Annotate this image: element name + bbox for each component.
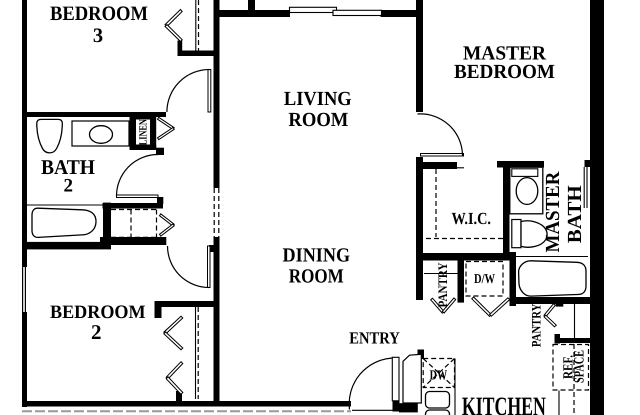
svg-text:KITCHEN: KITCHEN: [462, 391, 546, 415]
svg-text:D/W: D/W: [474, 271, 495, 286]
svg-text:ENTRY: ENTRY: [349, 328, 400, 347]
svg-text:2: 2: [64, 176, 74, 197]
svg-text:ROOM: ROOM: [289, 266, 344, 288]
svg-text:LINEN: LINEN: [138, 119, 150, 145]
svg-text:BEDROOM: BEDROOM: [50, 3, 148, 25]
svg-text:3: 3: [93, 25, 103, 47]
svg-text:ROOM: ROOM: [288, 109, 348, 131]
svg-text:BEDROOM: BEDROOM: [454, 61, 555, 83]
svg-text:MASTER: MASTER: [542, 171, 564, 253]
svg-text:BATH: BATH: [564, 185, 586, 243]
svg-text:DINING: DINING: [283, 244, 351, 266]
svg-text:PANTRY: PANTRY: [435, 262, 450, 308]
svg-text:2: 2: [91, 320, 102, 344]
svg-text:DW: DW: [430, 369, 448, 384]
svg-text:PANTRY: PANTRY: [529, 303, 544, 347]
svg-text:SPACE: SPACE: [573, 350, 588, 383]
svg-text:LIVING: LIVING: [284, 88, 352, 110]
svg-text:W.I.C.: W.I.C.: [451, 209, 491, 228]
